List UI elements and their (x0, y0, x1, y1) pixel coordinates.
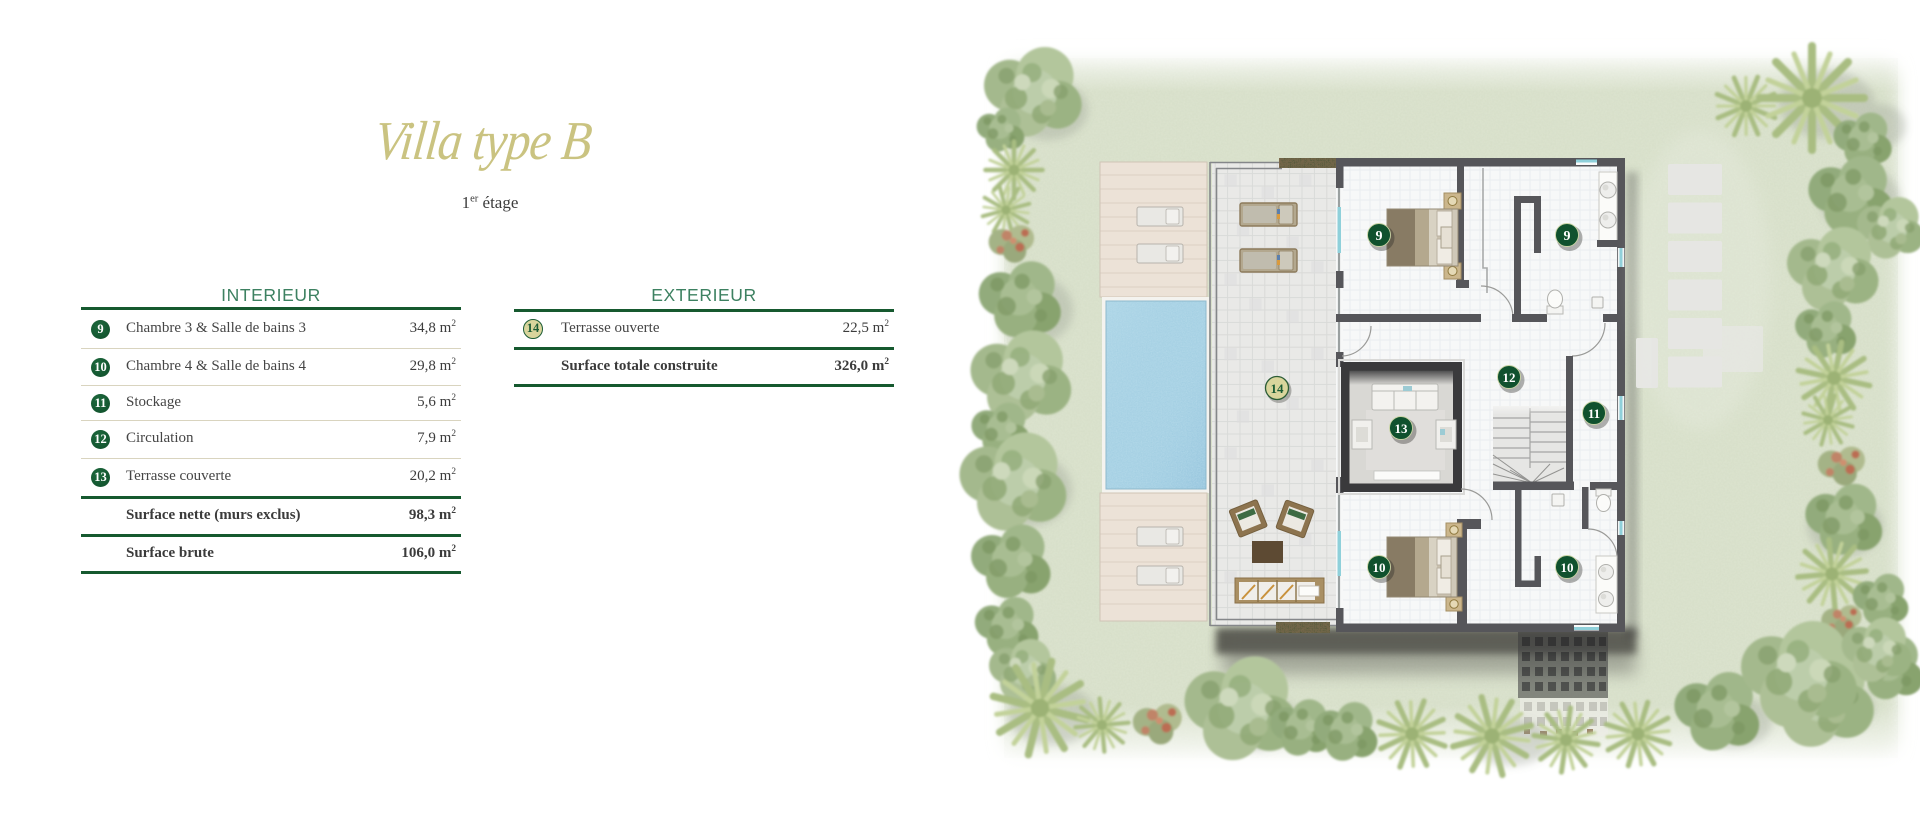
svg-text:9: 9 (1564, 229, 1571, 244)
svg-text:10: 10 (1561, 560, 1574, 575)
svg-text:12: 12 (1503, 370, 1516, 385)
svg-text:14: 14 (1271, 381, 1285, 396)
svg-text:10: 10 (1373, 560, 1386, 575)
svg-text:11: 11 (1588, 406, 1600, 421)
svg-text:13: 13 (1395, 421, 1409, 436)
svg-text:9: 9 (1376, 229, 1383, 244)
